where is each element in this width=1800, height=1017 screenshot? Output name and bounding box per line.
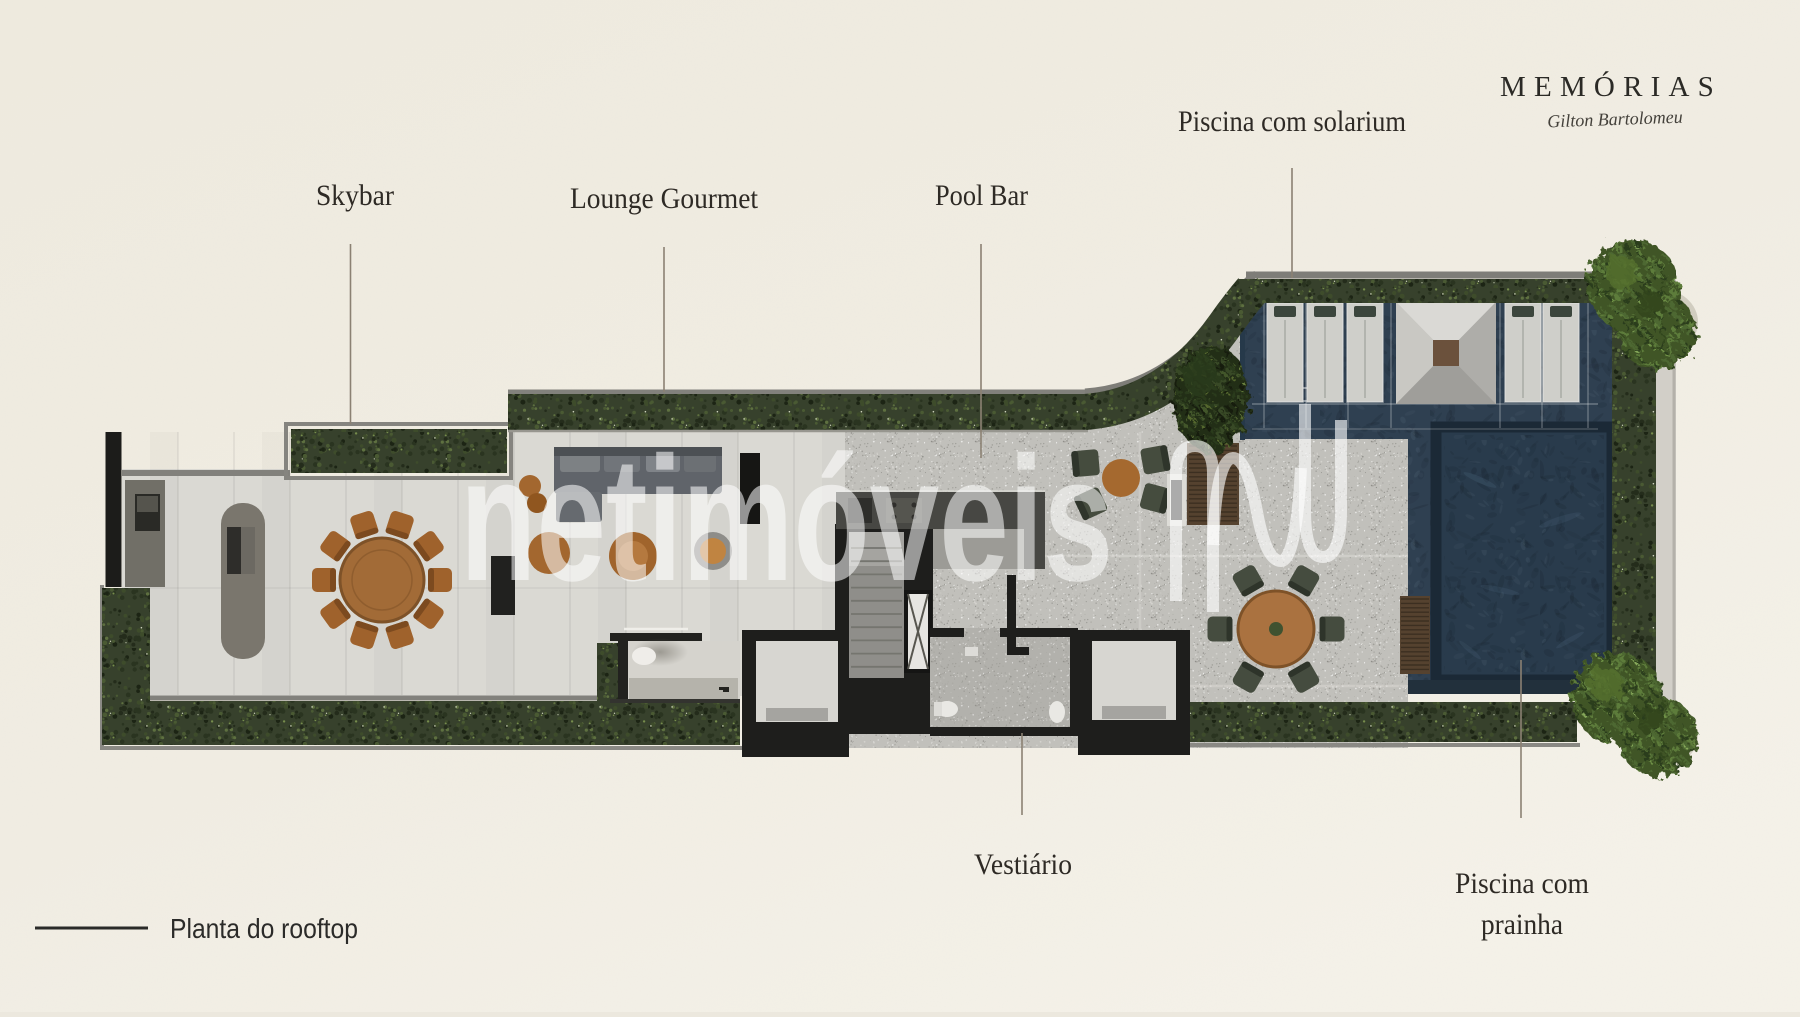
svg-text:Piscina com: Piscina com xyxy=(1455,867,1589,900)
svg-text:Lounge Gourmet: Lounge Gourmet xyxy=(570,182,759,215)
svg-text:Vestiário: Vestiário xyxy=(974,848,1072,881)
svg-text:Skybar: Skybar xyxy=(316,179,394,212)
svg-text:prainha: prainha xyxy=(1481,908,1563,941)
svg-text:Planta do rooftop: Planta do rooftop xyxy=(170,913,358,944)
svg-text:MEMÓRIAS: MEMÓRIAS xyxy=(1500,70,1722,103)
svg-text:Piscina com solarium: Piscina com solarium xyxy=(1178,105,1406,138)
svg-text:Pool Bar: Pool Bar xyxy=(935,179,1028,212)
svg-text:netimóveis: netimóveis xyxy=(460,420,1113,618)
